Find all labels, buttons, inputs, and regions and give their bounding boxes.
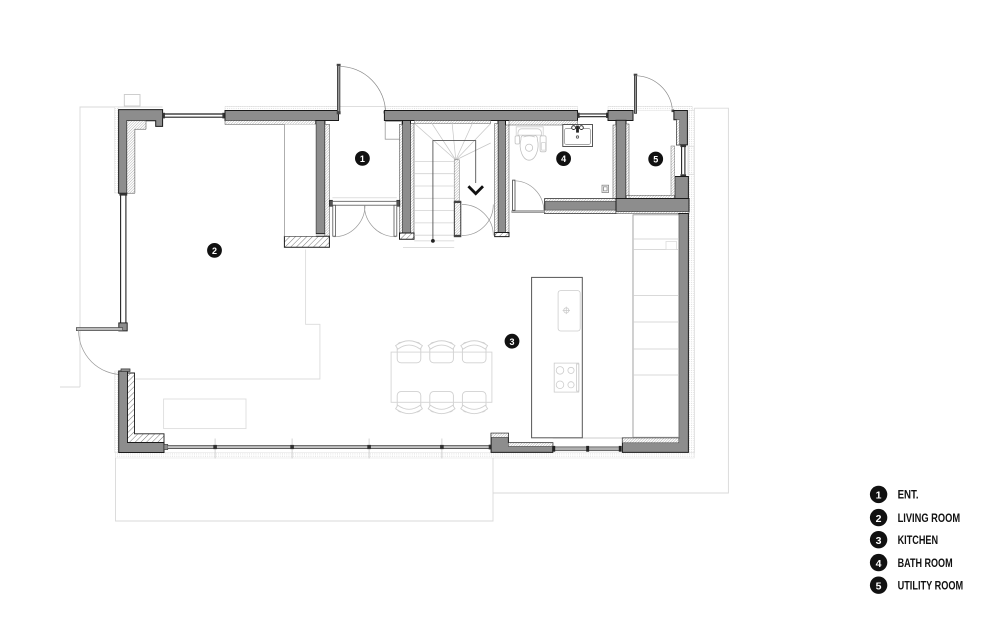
svg-text:5: 5 bbox=[653, 155, 658, 165]
svg-text:3: 3 bbox=[509, 337, 514, 347]
svg-text:1: 1 bbox=[360, 154, 365, 164]
svg-text:4: 4 bbox=[561, 154, 566, 164]
svg-text:5: 5 bbox=[876, 580, 882, 592]
svg-text:3: 3 bbox=[876, 535, 882, 547]
svg-text:1: 1 bbox=[876, 490, 882, 502]
svg-text:BATH ROOM: BATH ROOM bbox=[898, 556, 953, 570]
svg-text:KITCHEN: KITCHEN bbox=[898, 533, 939, 547]
svg-text:2: 2 bbox=[876, 513, 882, 525]
svg-text:LIVING ROOM: LIVING ROOM bbox=[898, 511, 961, 525]
svg-text:4: 4 bbox=[876, 558, 882, 570]
svg-text:UTILITY ROOM: UTILITY ROOM bbox=[898, 578, 964, 592]
svg-text:ENT.: ENT. bbox=[898, 488, 919, 502]
svg-text:2: 2 bbox=[212, 246, 217, 256]
